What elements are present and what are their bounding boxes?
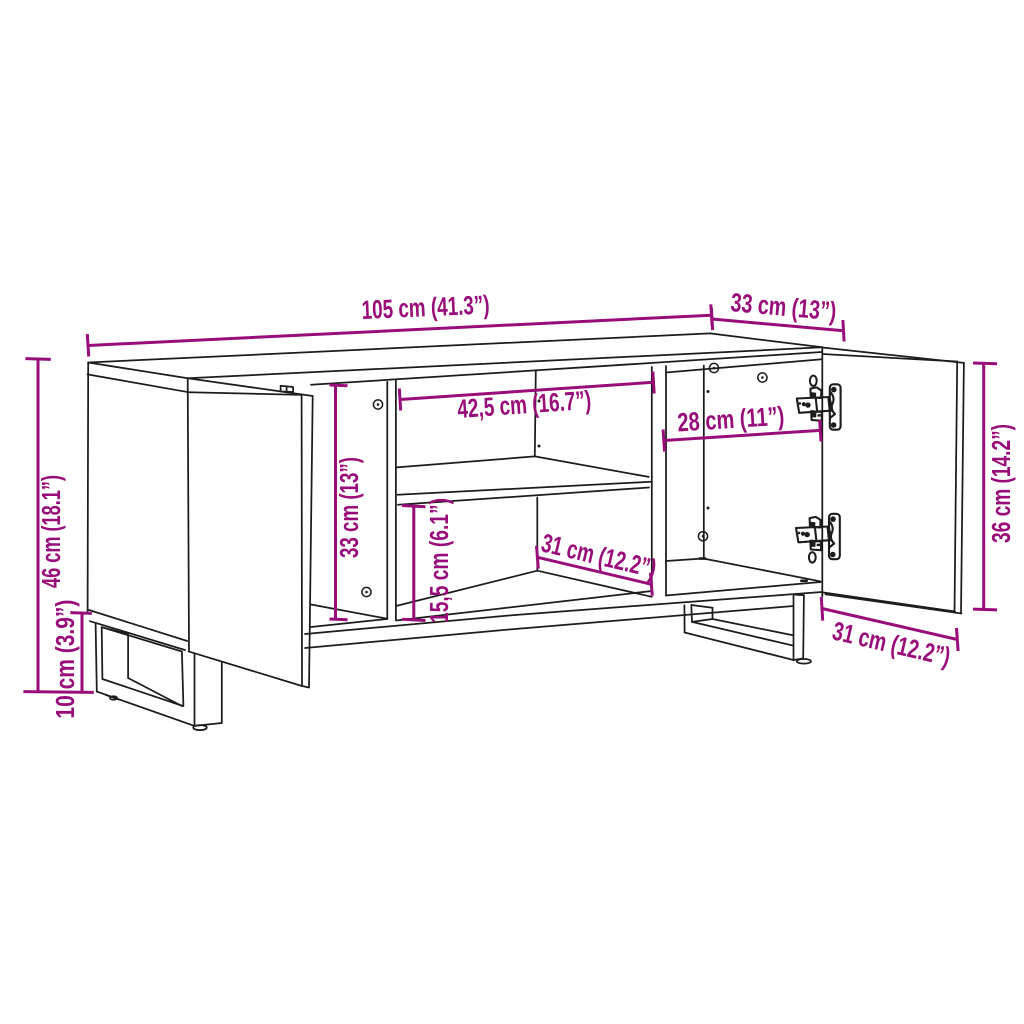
svg-text:15,5 cm (6.1”): 15,5 cm (6.1”) [424,498,454,623]
svg-text:10 cm (3.9”): 10 cm (3.9”) [50,600,80,719]
svg-text:105 cm (41.3”): 105 cm (41.3”) [361,289,490,325]
svg-text:36 cm (14.2”): 36 cm (14.2”) [986,424,1016,543]
svg-text:46 cm (18.1”): 46 cm (18.1”) [36,475,66,588]
svg-text:33 cm (13”): 33 cm (13”) [334,457,364,558]
